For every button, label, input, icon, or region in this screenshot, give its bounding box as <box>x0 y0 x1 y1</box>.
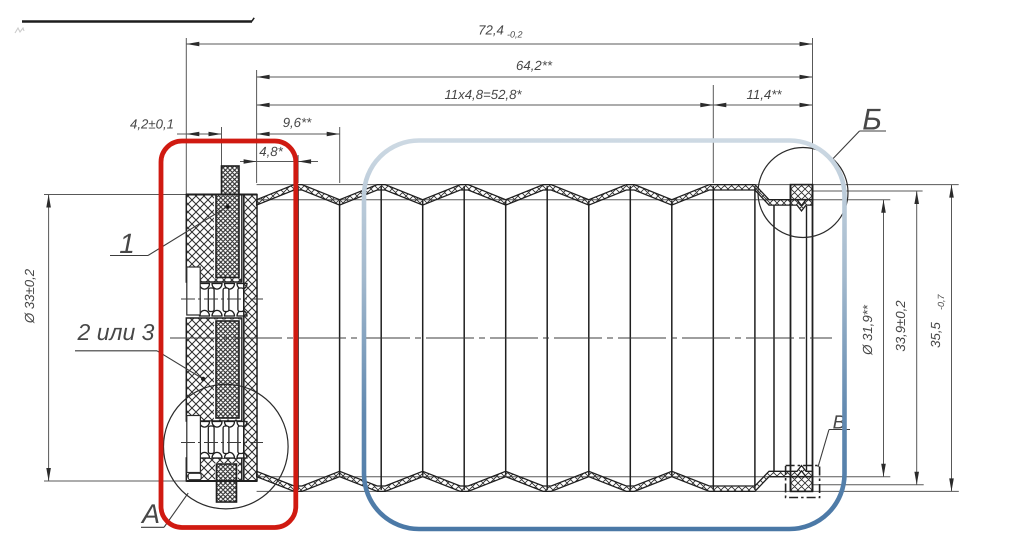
svg-text:35,5: 35,5 <box>928 322 943 348</box>
svg-text:11x4,8=52,8*: 11x4,8=52,8* <box>444 87 522 102</box>
svg-text:33,9±0,2: 33,9±0,2 <box>893 300 908 352</box>
svg-text:-0,7: -0,7 <box>936 293 946 310</box>
svg-text:Ø 31,9**: Ø 31,9** <box>860 304 875 356</box>
svg-text:4,8*: 4,8* <box>259 144 283 159</box>
svg-text:72,4: 72,4 <box>478 23 504 38</box>
svg-text:А: А <box>140 499 160 529</box>
svg-text:4,2±0,1: 4,2±0,1 <box>130 117 174 132</box>
svg-text:11,4**: 11,4** <box>747 87 783 102</box>
svg-text:64,2**: 64,2** <box>516 58 553 73</box>
svg-text:1: 1 <box>119 228 135 259</box>
svg-text:2 или 3: 2 или 3 <box>77 319 155 345</box>
svg-text:9,6**: 9,6** <box>283 115 312 130</box>
svg-text:Ø 33±0,2: Ø 33±0,2 <box>22 268 37 324</box>
svg-text:-0,2: -0,2 <box>507 30 523 40</box>
